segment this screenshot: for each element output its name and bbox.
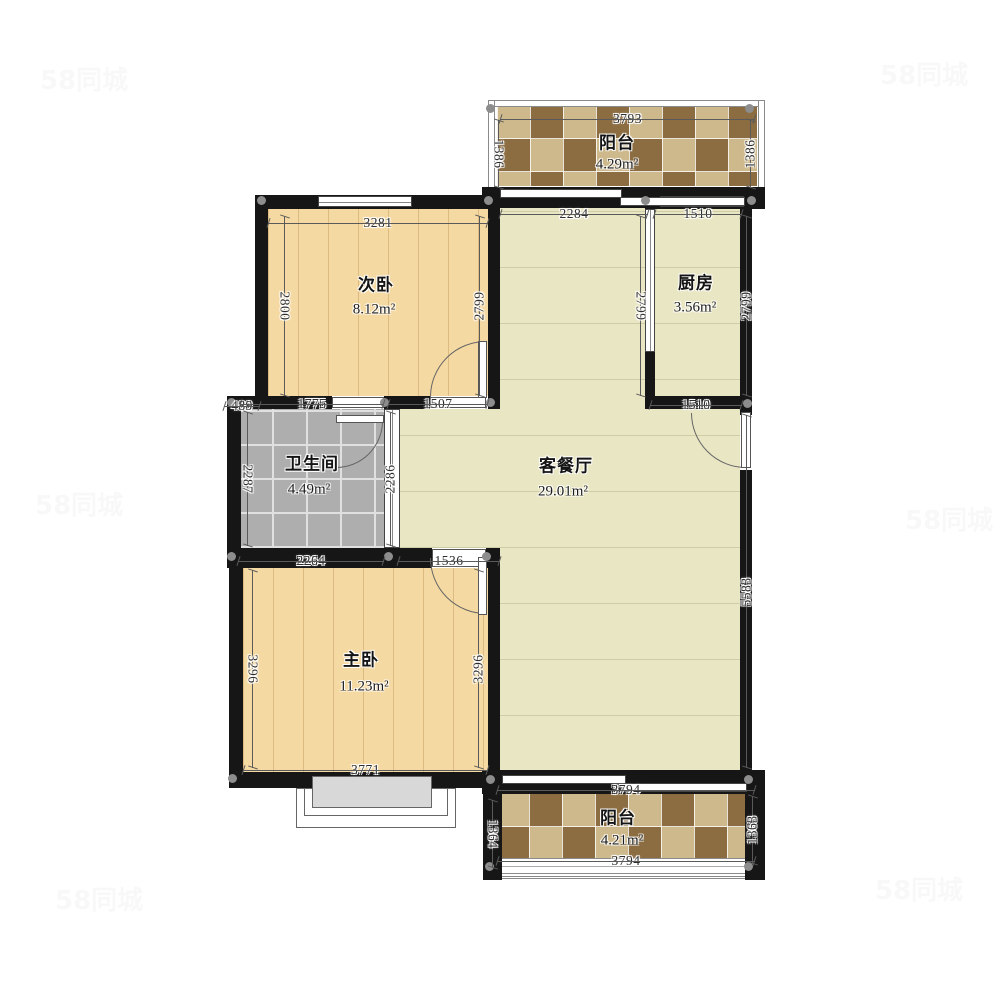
- room-area-kitchen: 3.56m²: [674, 300, 716, 317]
- dim-bathroom-left: 2287: [239, 412, 255, 546]
- dim-bedroom2-right: 2799: [471, 216, 487, 396]
- balcony-bottom-rail: [488, 876, 756, 879]
- watermark: 58同城: [55, 880, 143, 917]
- wall: [229, 556, 243, 788]
- room-name-kitchen: 厨房: [678, 269, 714, 294]
- room-area-bedroom2: 8.12m²: [353, 302, 395, 319]
- room-name-balcony-bottom: 阳台: [600, 804, 636, 829]
- corner-dot: [257, 196, 266, 205]
- dim-kitchen-bottom: 1510: [650, 397, 742, 412]
- room-name-master: 主卧: [343, 646, 379, 671]
- sliding-door-panel: [620, 197, 745, 206]
- wall: [488, 556, 500, 772]
- watermark: 58同城: [40, 60, 128, 97]
- dim-bedroom2-top: 3281: [268, 215, 488, 230]
- dim-kitchen-top: 1510: [654, 206, 742, 221]
- wall: [488, 195, 500, 409]
- watermark: 58同城: [880, 55, 968, 92]
- room-name-balcony-top: 阳台: [599, 129, 635, 154]
- room-area-balcony-top: 4.29m²: [596, 157, 638, 174]
- dim-living-top: 2284: [500, 206, 648, 221]
- corner-dot: [228, 774, 237, 783]
- dim-kitchen-left: 2799: [632, 216, 648, 396]
- watermark: 58同城: [35, 485, 123, 522]
- room-name-living: 客餐厅: [539, 452, 593, 477]
- room-area-master: 11.23m²: [339, 679, 388, 696]
- dim-master-top: 2264: [238, 553, 384, 568]
- dim-balcony-bottom-bottom: 3794: [497, 853, 755, 868]
- room-area-living: 29.01m²: [538, 484, 588, 501]
- bay-window: [312, 776, 432, 808]
- balcony-top-rail: [758, 100, 765, 192]
- corner-dot: [227, 552, 236, 561]
- dim-master-right: 3296: [470, 570, 486, 768]
- corner-dot: [743, 399, 752, 408]
- dim-balcony-top-width: 3793: [500, 111, 755, 126]
- corner-dot: [747, 196, 756, 205]
- room-name-bathroom: 卫生间: [285, 450, 339, 475]
- room-area-bathroom: 4.49m²: [288, 482, 330, 499]
- hall-floor: [392, 409, 500, 548]
- dim-kitchen-right: 2799: [738, 216, 754, 396]
- dim-bedroom2-left: 2800: [276, 216, 292, 396]
- window: [318, 196, 412, 207]
- floor-plan: 58同城 58同城 58同城 58同城 58同城 58同城: [0, 0, 1000, 1000]
- dim-master-door: 1536: [398, 553, 500, 568]
- dim-master-left: 3296: [244, 570, 260, 768]
- dim-balcony-top-left: 1386: [490, 120, 506, 188]
- watermark: 58同城: [905, 500, 993, 537]
- corner-dot: [484, 196, 493, 205]
- room-area-balcony-bottom: 4.21m²: [601, 833, 643, 850]
- dim-bathroom-right: 2286: [382, 412, 398, 546]
- dim-living-right: 5583: [738, 415, 754, 768]
- dim-balcony-top-right: 1386: [742, 120, 758, 188]
- dim-bathroom-top: 1775: [240, 396, 384, 411]
- dim-master-bottom: 3771: [243, 762, 488, 777]
- dim-balcony-bottom-top: 3794: [497, 782, 755, 797]
- door-leaf: [336, 415, 384, 423]
- dim-passage: 1507: [388, 396, 488, 411]
- balcony-top-rail: [488, 100, 765, 107]
- corner-dot: [486, 104, 495, 113]
- watermark: 58同城: [875, 870, 963, 907]
- sliding-door-panel: [500, 189, 622, 198]
- room-name-bedroom2: 次卧: [358, 271, 394, 296]
- corner-dot: [641, 196, 650, 205]
